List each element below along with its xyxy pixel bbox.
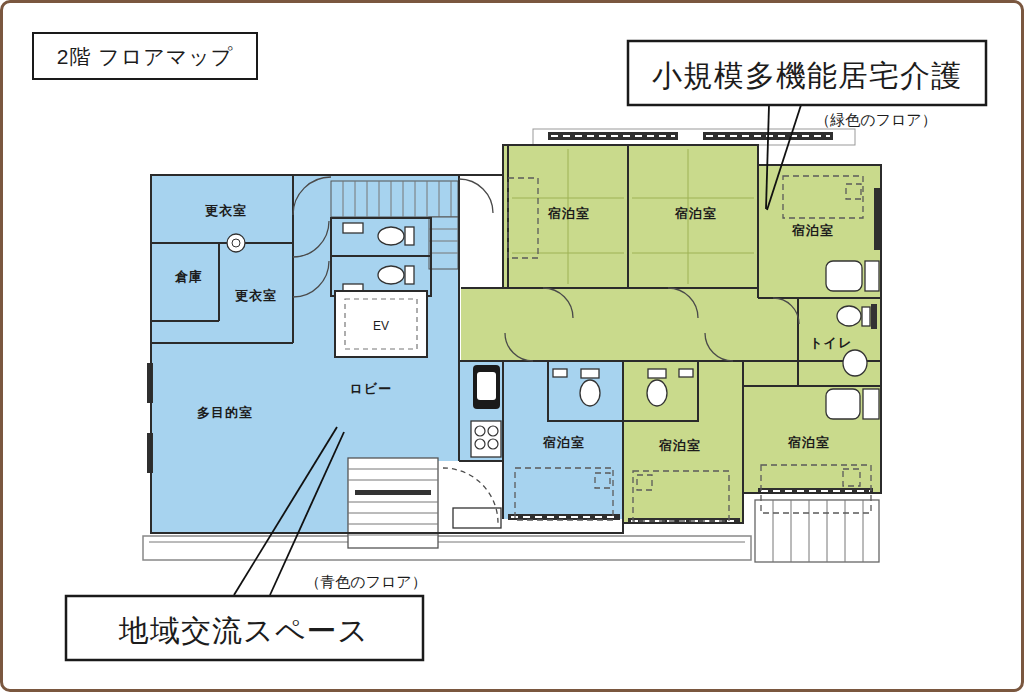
green-zone-annotation: 小規模多機能居宅介護 （緑色のフロア） xyxy=(628,41,986,128)
shoe-cabinet-icon xyxy=(453,508,501,528)
balcony-bottom xyxy=(143,536,751,560)
room-label-guest-top-left: 宿泊室 xyxy=(547,206,590,221)
toilet-icon xyxy=(647,380,667,406)
bathtub-icon xyxy=(826,261,862,291)
room-label-toilet: トイレ xyxy=(810,335,853,350)
toilet-tank-icon xyxy=(581,369,599,378)
title-box: 2階 フロアマップ xyxy=(33,33,257,79)
green-zone-caption: （緑色のフロア） xyxy=(815,111,936,128)
washbasin-icon xyxy=(679,369,693,377)
page-title: 2階 フロアマップ xyxy=(57,45,233,68)
toilet-tank-icon xyxy=(648,369,666,378)
room-label-guest-top-right: 宿泊室 xyxy=(791,223,834,238)
window-band-right xyxy=(874,188,881,250)
cabinet-icon xyxy=(863,389,879,419)
toilet-tank-icon xyxy=(862,307,870,326)
room-label-guest-bottom-middle: 宿泊室 xyxy=(658,438,701,453)
grab-bar-icon xyxy=(871,304,877,329)
room-label-guest-bottom-right: 宿泊室 xyxy=(787,435,830,450)
blue-zone-caption: （青色のフロア） xyxy=(305,573,426,590)
blue-zone-label: 地域交流スペース xyxy=(118,614,369,647)
toilet-tank-icon xyxy=(405,227,414,245)
room-label-guest-top-middle: 宿泊室 xyxy=(674,206,717,221)
toilet-icon xyxy=(837,306,861,326)
cabinet-icon xyxy=(865,261,879,291)
room-label-lobby: ロビー xyxy=(350,381,393,396)
room-label-storage: 倉庫 xyxy=(174,269,203,284)
bathtub-icon xyxy=(826,389,860,419)
stove-icon xyxy=(471,421,501,457)
room-label-multipurpose: 多目的室 xyxy=(197,405,253,420)
toilet-tank-icon xyxy=(405,266,414,284)
washbasin-icon xyxy=(227,234,245,252)
washbasin-icon xyxy=(343,223,363,233)
room-label-guest-bottom-left: 宿泊室 xyxy=(542,435,585,450)
room-label-changing-room-lower: 更衣室 xyxy=(235,288,277,303)
toilet-icon xyxy=(378,266,404,284)
washbasin-icon xyxy=(843,350,867,376)
stairs-bottom xyxy=(348,458,438,548)
washbasin-icon xyxy=(553,369,567,377)
page-frame: 更衣室 倉庫 更衣室 EV ロビー 多目的室 宿泊室 宿泊室 宿泊室 トイレ 宿… xyxy=(0,0,1024,692)
green-zone-label: 小規模多機能居宅介護 xyxy=(652,59,962,92)
blue-zone-annotation: 地域交流スペース （青色のフロア） xyxy=(66,573,427,660)
green-zone-top-rooms xyxy=(503,145,758,288)
balcony-bottom-right xyxy=(755,500,879,562)
toilet-icon xyxy=(580,380,600,406)
toilet-icon xyxy=(378,227,404,245)
room-label-elevator: EV xyxy=(373,319,389,333)
room-label-changing-room-upper: 更衣室 xyxy=(205,203,247,218)
floor-map-canvas: 更衣室 倉庫 更衣室 EV ロビー 多目的室 宿泊室 宿泊室 宿泊室 トイレ 宿… xyxy=(3,3,1024,692)
